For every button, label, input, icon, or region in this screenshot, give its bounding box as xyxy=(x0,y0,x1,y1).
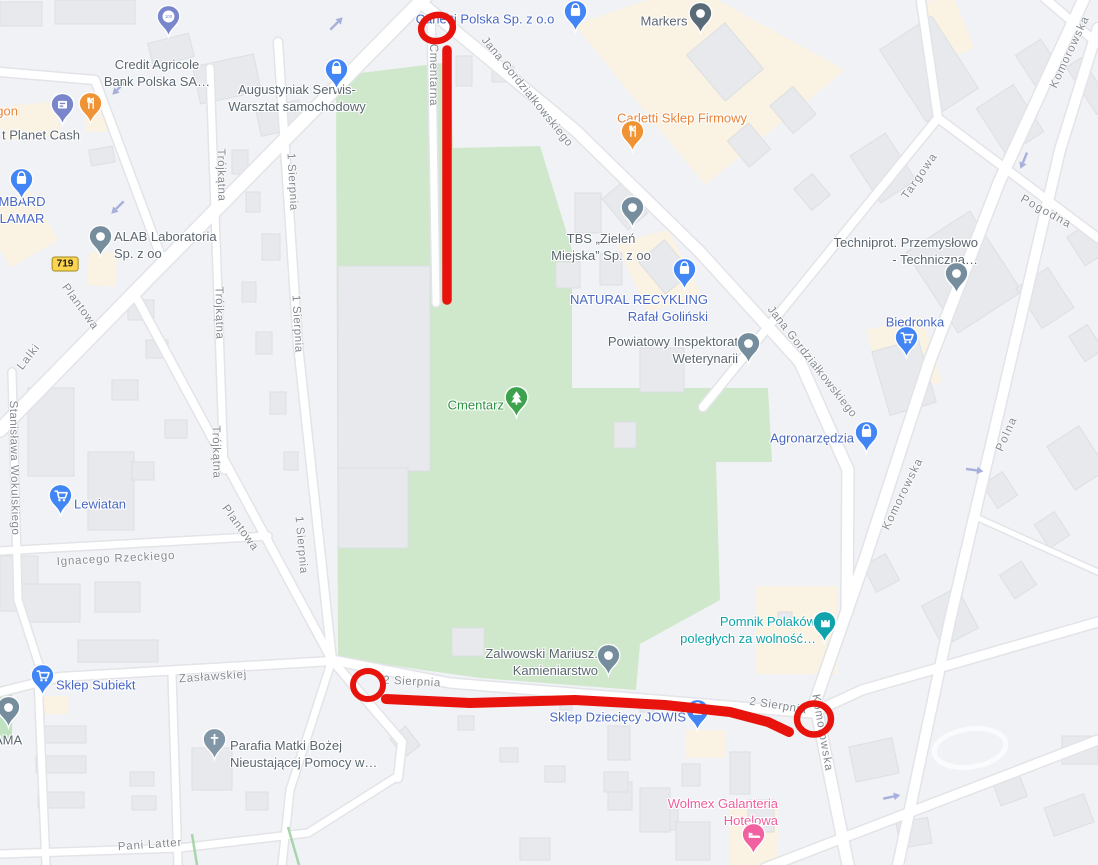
poi-pin-agronarzedzia[interactable] xyxy=(854,420,879,460)
map-canvas[interactable]: CmentarnaJana GordziałkowskiegoJana Gord… xyxy=(0,0,1098,865)
building xyxy=(338,468,408,548)
poi-label-jowis[interactable]: Sklep Dziecięcy JOWIŚ xyxy=(406,709,686,726)
building xyxy=(112,380,138,400)
building xyxy=(20,584,80,622)
poi-label-natural-recykling[interactable]: NATURAL RECYKLING Rafał Goliński xyxy=(428,291,708,325)
poi-pin-pomnik[interactable] xyxy=(812,610,837,650)
building xyxy=(794,174,830,211)
building xyxy=(556,262,580,288)
place-icon xyxy=(4,703,13,712)
building xyxy=(338,266,430,471)
building xyxy=(88,452,134,530)
poi-pin-lombard-lamar[interactable] xyxy=(9,167,34,207)
building xyxy=(246,192,260,212)
poi-pin-sklep-subiekt[interactable] xyxy=(30,663,55,703)
route-shield-719: 719 xyxy=(52,257,79,272)
building xyxy=(246,792,268,810)
poi-label-powiatowy-inspektorat[interactable]: Powiatowy Inspektorat Weterynarii xyxy=(458,333,738,367)
place-icon xyxy=(96,232,105,241)
poi-label-techniprot[interactable]: Techniprot. Przemysłowo - Techniczna… xyxy=(698,234,978,268)
poi-pin-cmentarz[interactable] xyxy=(504,385,529,425)
building xyxy=(575,193,601,233)
one-way-arrow-icon xyxy=(109,199,127,217)
street-label-trojkatna-2: Trójkątna xyxy=(213,286,226,339)
place-icon xyxy=(628,203,637,212)
bank-icon: 100 xyxy=(162,11,174,23)
poi-label-pomnik[interactable]: Pomnik Polaków poległych za wolność… xyxy=(536,613,816,647)
building xyxy=(89,146,115,166)
building xyxy=(608,726,630,760)
street-label-stanislawa-wokulskiego: Stanisława Wokulskiego xyxy=(7,401,21,536)
poi-pin-parafia[interactable] xyxy=(202,727,227,767)
building xyxy=(849,738,900,782)
poi-pin-zalwowski[interactable] xyxy=(596,643,621,683)
building xyxy=(520,838,550,860)
street-label-trojkatna-1: Trójkątna xyxy=(215,148,228,201)
poi-pin-alab[interactable] xyxy=(88,224,113,264)
building xyxy=(1044,794,1094,837)
road xyxy=(765,740,1098,865)
building xyxy=(500,748,518,762)
poi-label-alab[interactable]: ALAB Laboratoria Sp. z oo xyxy=(114,228,217,262)
poi-pin-natural-recykling[interactable] xyxy=(672,257,697,297)
building xyxy=(130,772,154,786)
poi-label-carletti-polska[interactable]: Carletti Polska Sp. z o.o xyxy=(416,11,555,28)
building xyxy=(730,752,750,794)
poi-pin-jowis[interactable] xyxy=(685,698,710,738)
atm-icon xyxy=(57,101,66,109)
poi-pin-carletti-sklep-firmowy[interactable] xyxy=(620,119,645,159)
street-label-trojkatna-3: Trójkątna xyxy=(210,425,223,478)
poi-label-wolmex[interactable]: Wolmex Galanteria Hotelowa xyxy=(498,795,778,829)
poi-pin-planet-cash[interactable] xyxy=(50,92,75,132)
building xyxy=(242,282,256,302)
monument-icon xyxy=(821,620,830,627)
poi-label-agronarzedzia[interactable]: Agronarzędzia xyxy=(574,430,854,447)
road xyxy=(0,536,268,551)
building xyxy=(256,332,272,354)
poi-label-cmentarz[interactable]: Cmentarz xyxy=(224,397,504,414)
poi-label-gon[interactable]: gon xyxy=(0,103,18,120)
poi-label-lewiatan[interactable]: Lewiatan xyxy=(74,496,126,513)
svg-text:100: 100 xyxy=(164,14,172,19)
building xyxy=(262,234,280,260)
poi-pin-augustyniak[interactable] xyxy=(324,57,349,97)
poi-pin-carletti-polska[interactable] xyxy=(563,0,588,39)
building xyxy=(55,0,135,24)
place-icon xyxy=(952,269,961,278)
building xyxy=(165,420,187,438)
poi-label-zalwowski[interactable]: Zalwowski Mariusz. Kamieniarstwo xyxy=(318,645,598,679)
building xyxy=(545,766,565,782)
street-label-cmentarna: Cmentarna xyxy=(427,44,439,106)
building xyxy=(78,640,158,662)
building xyxy=(132,462,154,480)
poi-label-credit-agricole[interactable]: Credit Agricole Bank Polska SA… xyxy=(104,56,210,90)
one-way-arrow-icon xyxy=(328,15,346,33)
building xyxy=(1069,324,1098,361)
building xyxy=(284,452,298,470)
building xyxy=(1047,426,1098,490)
one-way-arrow-icon xyxy=(882,791,901,802)
poi-label-sklep-subiekt[interactable]: Sklep Subiekt xyxy=(56,677,136,694)
poi-label-markers[interactable]: Markers xyxy=(641,13,688,30)
poi-pin-techniprot[interactable] xyxy=(944,261,969,301)
place-icon xyxy=(696,9,705,18)
poi-pin-markers[interactable] xyxy=(688,1,713,41)
building xyxy=(456,56,472,86)
building xyxy=(604,772,628,792)
poi-pin-tbs-zielen[interactable] xyxy=(620,195,645,235)
building xyxy=(132,796,156,810)
poi-label-parafia[interactable]: Parafia Matki Bożej Nieustającej Pomocy … xyxy=(230,737,377,771)
poi-pin-ama[interactable] xyxy=(0,695,21,735)
poi-pin-credit-agricole[interactable]: 100 xyxy=(156,4,181,44)
building xyxy=(0,2,42,26)
poi-pin-biedronka[interactable] xyxy=(894,325,919,365)
building xyxy=(682,764,700,786)
poi-label-tbs-zielen[interactable]: TBS „Zieleń Miejska” Sp. z oo xyxy=(551,230,651,264)
poi-pin-wolmex[interactable] xyxy=(741,822,766,862)
place-icon xyxy=(604,651,613,660)
poi-pin-lewiatan[interactable] xyxy=(48,483,73,523)
poi-pin-powiatowy-inspektorat[interactable] xyxy=(736,331,761,371)
building xyxy=(999,561,1036,599)
place-icon xyxy=(744,339,753,348)
building xyxy=(95,582,140,612)
poi-pin-gon[interactable] xyxy=(78,91,103,131)
